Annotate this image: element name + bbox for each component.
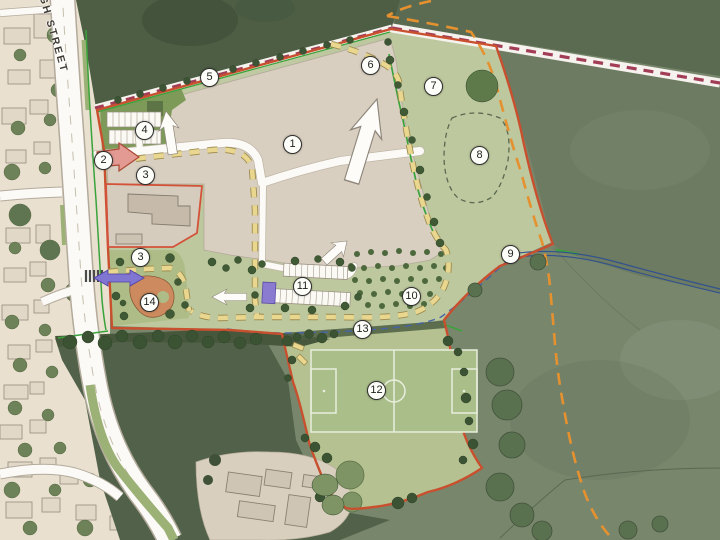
map-marker-2: 2 — [94, 151, 113, 170]
map-marker-11: 11 — [293, 277, 312, 296]
map-marker-3: 3 — [131, 248, 150, 267]
map-marker-5: 5 — [200, 68, 219, 87]
map-marker-12: 12 — [367, 381, 386, 400]
map-marker-8: 8 — [470, 146, 489, 165]
map-marker-10: 10 — [402, 287, 421, 306]
annotation-overlay: HIGH STREET 12345678910113121314 — [0, 0, 720, 540]
map-marker-6: 6 — [361, 56, 380, 75]
map-marker-3: 3 — [136, 166, 155, 185]
map-marker-13: 13 — [353, 320, 372, 339]
street-name-label: HIGH STREET — [32, 0, 70, 74]
map-marker-4: 4 — [135, 121, 154, 140]
site-masterplan: HIGH STREET 12345678910113121314 — [0, 0, 720, 540]
map-marker-1: 1 — [283, 135, 302, 154]
map-marker-7: 7 — [424, 77, 443, 96]
map-marker-14: 14 — [140, 293, 159, 312]
map-marker-9: 9 — [501, 245, 520, 264]
